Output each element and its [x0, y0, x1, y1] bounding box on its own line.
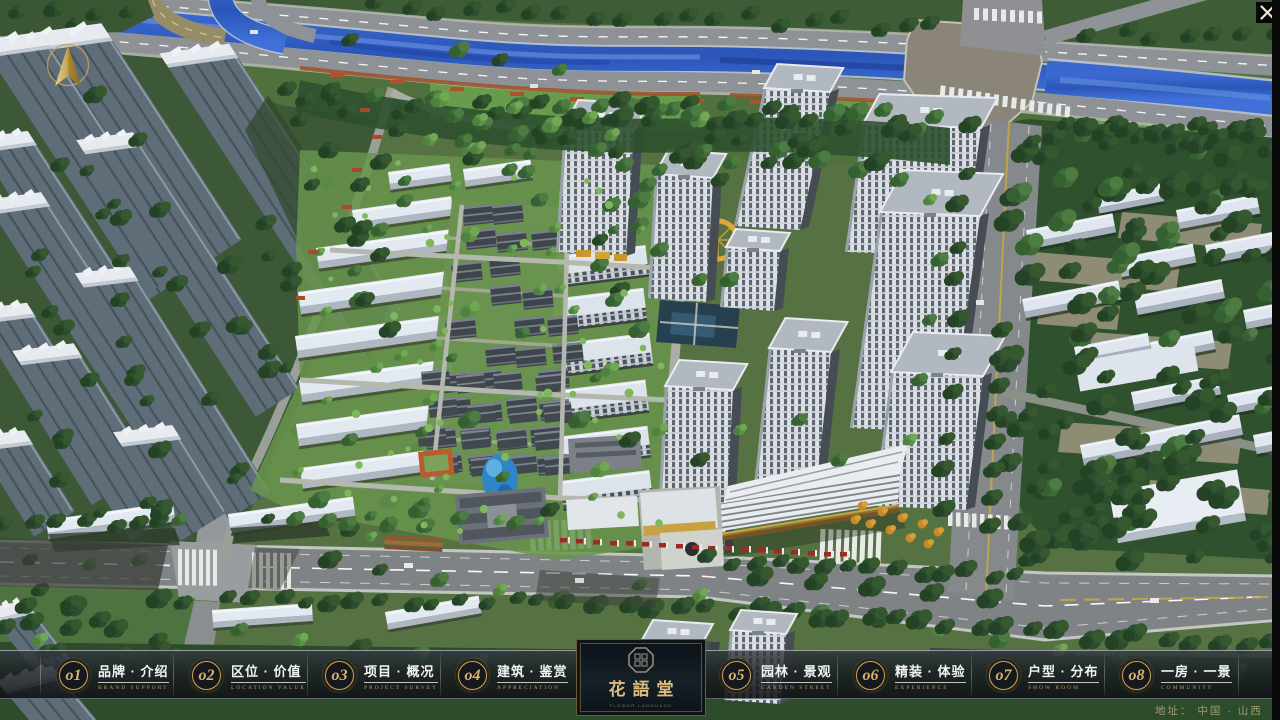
svg-text:N: N [64, 34, 71, 44]
